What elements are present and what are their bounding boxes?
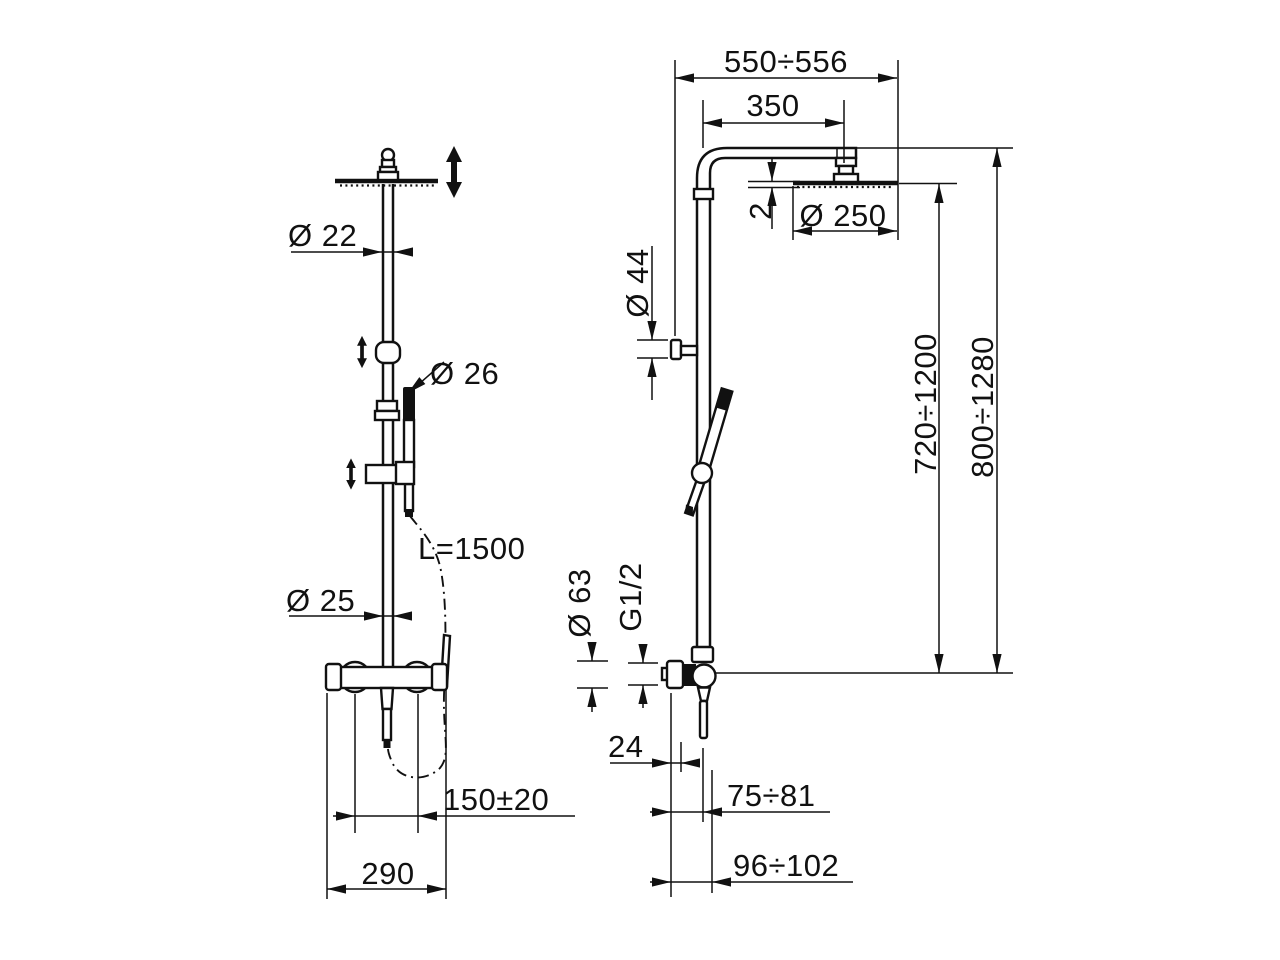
dim-arrowhead	[647, 358, 656, 377]
slider-knob-side	[692, 463, 712, 483]
front-view: Ø 22 Ø 26 L=1500 Ø 25 150±20 290	[286, 146, 575, 899]
dim-escutcheon-diameter: Ø 63	[562, 568, 608, 712]
dim-label-upper-pipe-diameter: Ø 22	[288, 218, 357, 253]
dim-arrowhead	[363, 247, 382, 256]
dim-arrowhead	[992, 148, 1001, 167]
valve-outlet	[698, 688, 710, 702]
overhead-connector-side	[834, 158, 858, 183]
dim-arrowhead	[393, 611, 412, 620]
hand-shower-front	[403, 387, 415, 517]
hand-shower-grip-side	[716, 388, 732, 410]
dim-arm-projection: 350	[703, 88, 844, 128]
dim-arrowhead	[364, 611, 383, 620]
mixer-outlet-tip	[384, 739, 391, 748]
height-adjust-arrow-joint	[357, 336, 367, 368]
mixer-cap-left	[326, 664, 341, 690]
dim-arrowhead	[652, 877, 671, 886]
dim-label-head-thickness: 2	[743, 202, 778, 220]
dim-arrowhead	[587, 642, 596, 661]
dim-label-wall-bracket-diameter: Ø 44	[620, 248, 655, 317]
dim-head-diameter: Ø 250	[793, 198, 897, 236]
dim-arrowhead	[652, 807, 671, 816]
dim-arrowhead	[327, 884, 346, 893]
hand-shower-cap	[405, 509, 413, 517]
technical-drawing-canvas: Ø 22 Ø 26 L=1500 Ø 25 150±20 290	[0, 0, 1280, 960]
dim-label-overall-adjustable-height: 800÷1280	[965, 336, 1000, 478]
pipe-union-front-a	[377, 401, 397, 411]
height-adjust-arrow-bracket	[346, 458, 356, 489]
dim-arrowhead	[825, 118, 844, 127]
dim-supply-connection-spacing: 150±20	[333, 782, 575, 821]
height-adjust-arrow-head	[446, 146, 462, 198]
dim-label-mixer-width: 290	[361, 856, 414, 891]
dim-arrowhead	[638, 685, 647, 704]
dim-arrowhead	[336, 811, 355, 820]
dim-arrowhead	[681, 758, 700, 767]
dim-arrowhead	[587, 688, 596, 707]
dim-arrowhead	[934, 654, 943, 673]
dim-wall-to-head-edge: 550÷556	[675, 44, 897, 83]
pipe-union-front-b	[375, 411, 399, 420]
dim-label-escutcheon-diameter: Ø 63	[562, 568, 597, 637]
dim-label-arm-projection: 350	[746, 88, 799, 123]
dim-label-hand-shower-diameter: Ø 26	[430, 356, 499, 391]
dim-label-wall-to-head-edge: 550÷556	[724, 44, 848, 79]
supply-valve-side	[662, 661, 716, 738]
side-view: 550÷556 350 Ø 250 2 Ø 44	[562, 44, 1013, 897]
pipe-ball-joint-front	[376, 342, 400, 363]
dim-arrowhead	[934, 184, 943, 203]
dim-escutcheon-depth: 24	[608, 729, 700, 768]
dim-arrowhead	[652, 758, 671, 767]
dim-label-riser-adjustable-height: 720÷1200	[908, 333, 943, 475]
slider-bracket-front	[366, 462, 414, 484]
valve-outlet-tube	[700, 701, 707, 738]
dim-arrowhead	[638, 644, 647, 663]
dim-arrowhead	[418, 811, 437, 820]
dim-label-connection-thread: G1/2	[613, 562, 648, 631]
dim-wall-to-riser-front: 96÷102	[650, 848, 853, 887]
dim-connection-thread: G1/2	[613, 562, 658, 708]
dim-arrowhead	[878, 73, 897, 82]
dim-arrowhead	[992, 654, 1001, 673]
dim-overall-adjustable-height: 800÷1280	[965, 148, 1002, 673]
dim-label-escutcheon-depth: 24	[608, 729, 643, 764]
dim-riser-adjustable-height: 720÷1200	[908, 184, 944, 673]
dim-arrowhead	[675, 73, 694, 82]
wall-bracket-side	[671, 340, 697, 359]
dim-arrowhead	[703, 118, 722, 127]
mixer-cap-right	[432, 664, 447, 690]
dim-label-wall-to-riser-front: 96÷102	[733, 848, 839, 883]
drawing-page: Ø 22 Ø 26 L=1500 Ø 25 150±20 290	[0, 0, 1280, 960]
hand-shower-wand	[404, 420, 414, 467]
dim-arrowhead	[427, 884, 446, 893]
dim-arrowhead	[712, 877, 731, 886]
dim-arrowhead	[647, 321, 656, 340]
dim-label-head-diameter: Ø 250	[800, 198, 887, 233]
pipe-union-side	[692, 647, 713, 662]
dim-head-thickness: 2	[743, 158, 800, 229]
dim-label-supply-spacing: 150±20	[443, 782, 549, 817]
hand-shower-tip	[405, 484, 413, 511]
dim-label-hose-length: L=1500	[418, 531, 525, 566]
riser-pipe-front	[383, 184, 393, 668]
mixer-outlet	[381, 688, 393, 709]
valve-ball	[693, 665, 716, 688]
dim-arrowhead	[394, 247, 413, 256]
dim-mixer-overall-width: 290	[327, 856, 446, 894]
mixer-bar	[340, 667, 433, 688]
dim-label-lower-pipe-diameter: Ø 25	[286, 583, 355, 618]
elbow-joint-ring	[694, 189, 713, 199]
dim-wall-to-riser-axis: 75÷81	[650, 778, 830, 817]
overhead-swivel-joint	[378, 149, 398, 180]
dim-label-wall-to-riser-axis: 75÷81	[727, 778, 815, 813]
escutcheon-flange	[667, 661, 683, 688]
mixer-outlet-tube	[383, 709, 391, 740]
dim-wall-bracket-diameter: Ø 44	[620, 246, 668, 400]
dim-hand-shower-diameter: Ø 26	[405, 356, 499, 396]
dim-arrowhead	[767, 162, 776, 181]
mixer-body-front	[326, 662, 447, 748]
